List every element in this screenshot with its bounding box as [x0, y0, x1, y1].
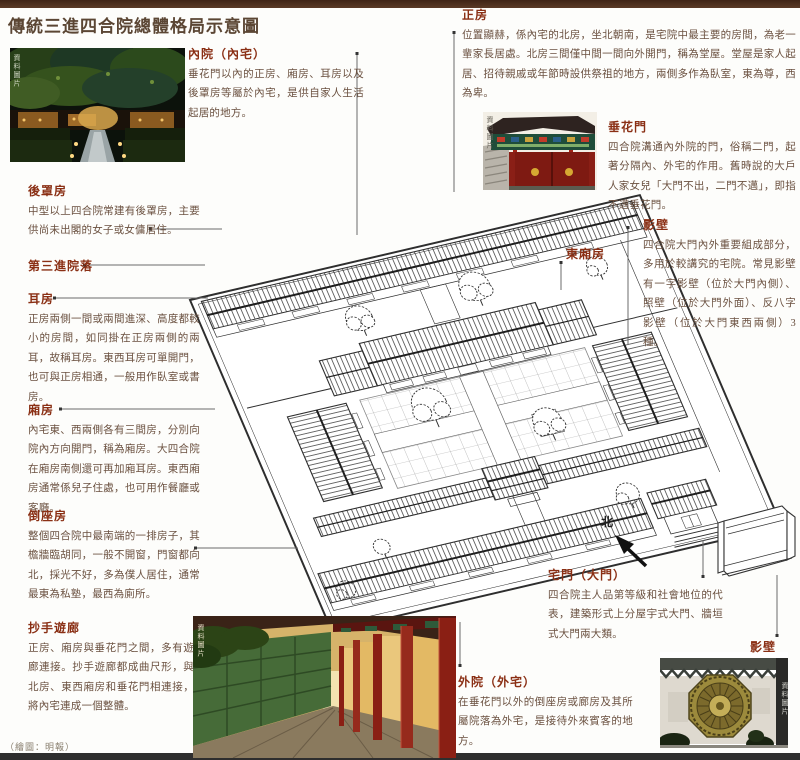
photo-yingbi-screen-wall: 資料圖片 — [660, 652, 788, 748]
tree — [453, 269, 498, 309]
annotation-erfang: 耳房 正房兩側一間或兩間進深、高度都較小的房間，如同掛在正房兩側的兩耳，故稱耳房… — [28, 290, 200, 407]
north-arrow-icon — [615, 535, 646, 566]
chuihuamen-body: 四合院溝通內外院的門，俗稱二門，起著分隔內、外宅的作用。舊時說的大戶人家女兒「大… — [608, 138, 796, 216]
daozuofang-heading: 倒座房 — [28, 507, 200, 524]
annotation-zhaimen: 宅門（大門） 四合院主人品第等級和社會地位的代表，建築形式上分屋宇式大門、牆垣式… — [548, 566, 723, 644]
erfang-body: 正房兩側一間或兩間進深、高度都較小的房間，如同掛在正房兩側的兩耳，故稱耳房。東西… — [28, 310, 200, 407]
corridor-and-chuihuamen — [310, 419, 713, 549]
night-courtyard-image — [10, 48, 185, 162]
photo-credit: 資料圖片 — [484, 116, 494, 150]
leader-disanjin — [83, 264, 205, 267]
zhengfang-body: 位置顯赫，係內宅的北房，坐北朝南，是宅院中最主要的房間，為老一輩家長居處。北房三… — [462, 26, 796, 104]
label-north: 北 — [601, 513, 613, 530]
chuihuamen-gate-image — [483, 112, 597, 190]
label-disanjin-yuanluo: 第三進院落 — [28, 257, 93, 274]
chuihuamen-heading: 垂花門 — [608, 118, 796, 135]
tree — [527, 405, 572, 444]
entrance-gate-zhaimen — [647, 479, 729, 548]
photo-night-courtyard: 資料圖片 — [10, 48, 185, 162]
corridor-image — [193, 616, 456, 758]
yingbi-heading: 影壁 — [643, 216, 796, 233]
erfang-heading: 耳房 — [28, 290, 200, 307]
leader-yingbi — [627, 226, 630, 345]
yingbi-body: 四合院大門內外重要組成部分，多用於較講究的宅院。常見影壁有一字影壁（位於大門內側… — [643, 236, 796, 353]
tree — [371, 538, 395, 561]
houzhaofang-body: 中型以上四合院常建有後罩房，主要供尚未出閣的女子或女傭居住。 — [28, 202, 200, 241]
annotation-chuihuamen: 垂花門 四合院溝通內外院的門，俗稱二門，起著分隔內、外宅的作用。舊時說的大戶人家… — [608, 118, 796, 216]
tree — [611, 481, 645, 511]
leader-zhengfang — [453, 31, 456, 192]
illustration-credit: （繪圖：明報） — [5, 740, 75, 753]
annotation-yingbi: 影壁 四合院大門內外重要組成部分，多用於較講究的宅院。常見影壁有一字影壁（位於大… — [643, 216, 796, 353]
zhaimen-body: 四合院主人品第等級和社會地位的代表，建築形式上分屋宇式大門、牆垣式大門兩大類。 — [548, 586, 723, 644]
yingbi-screen-wall-image — [660, 652, 788, 748]
photo-credit: 資料圖片 — [779, 682, 788, 716]
annotation-chaoshouyoulang: 抄手遊廊 正房、廂房與垂花門之間，多有遊廊連接。抄手遊廊都成曲尺形，與北房、東西… — [28, 619, 194, 717]
annotation-houzhaofang: 後罩房 中型以上四合院常建有後罩房，主要供尚未出閣的女子或女傭居住。 — [28, 182, 200, 241]
main-hall-zhengfang — [232, 273, 684, 424]
photo-credit: 資料圖片 — [195, 624, 205, 658]
waiyuan-heading: 外院（外宅） — [458, 673, 633, 690]
xiangfang-heading: 廂房 — [28, 401, 200, 418]
chaoshouyoulang-body: 正房、廂房與垂花門之間，多有遊廊連接。抄手遊廊都成曲尺形，與北房、東西廂房和垂花… — [28, 639, 194, 717]
leader-waiyuan — [459, 622, 462, 667]
leader-yingbi-bottom — [776, 575, 779, 637]
zhaimen-heading: 宅門（大門） — [548, 566, 723, 583]
screen-wall-sketch — [718, 506, 795, 576]
tree — [332, 579, 361, 605]
neiyuan-heading: 內院（內宅） — [188, 45, 364, 62]
waiyuan-body: 在垂花門以外的倒座房或廊房及其所屬院落為外宅，是接待外來賓客的地方。 — [458, 693, 633, 751]
page-title: 傳統三進四合院總體格局示意圖 — [8, 12, 260, 37]
inner-courtyard — [360, 348, 623, 489]
zhengfang-heading: 正房 — [462, 6, 796, 23]
annotation-neiyuan: 內院（內宅） 垂花門以內的正房、廂房、耳房以及後罩房等屬於內宅，是供自家人生活起… — [188, 45, 364, 123]
annotation-daozuofang: 倒座房 整個四合院中最南端的一排房子，其檐牆臨胡同，一般不開窗，門窗都向北，採光… — [28, 507, 200, 605]
houzhaofang-heading: 後罩房 — [28, 182, 200, 199]
annotation-zhengfang: 正房 位置顯赫，係內宅的北房，坐北朝南，是宅院中最主要的房間，為老一輩家長居處。… — [462, 6, 796, 104]
tree — [404, 384, 457, 431]
photo-chuihuamen-gate: 資料圖片 — [483, 112, 597, 190]
label-yingbi-photo: 影壁 — [750, 638, 776, 655]
leader-daozuofang — [194, 547, 298, 550]
daozuofang-body: 整個四合院中最南端的一排房子，其檐牆臨胡同，一般不開窗，門窗都向北，採光不好，多… — [28, 527, 200, 605]
leader-dongxiangfang — [560, 261, 563, 290]
neiyuan-body: 垂花門以內的正房、廂房、耳房以及後罩房等屬於內宅，是供自家人生活起居的地方。 — [188, 65, 364, 123]
photo-credit: 資料圖片 — [11, 54, 21, 88]
label-dongxiangfang: 東廂房 — [566, 245, 605, 262]
rear-building-houzhaofang — [201, 201, 647, 337]
tree — [340, 303, 380, 339]
annotation-xiangfang: 廂房 內宅東、西兩側各有三間房，分別向院內方向開門，稱為廂房。大四合院在廂房南側… — [28, 401, 200, 518]
chaoshouyoulang-heading: 抄手遊廊 — [28, 619, 194, 636]
annotation-waiyuan: 外院（外宅） 在垂花門以外的倒座房或廊房及其所屬院落為外宅，是接待外來賓客的地方… — [458, 673, 633, 751]
photo-corridor: 資料圖片 — [193, 616, 456, 758]
west-wing-xiangfang — [287, 402, 388, 502]
xiangfang-body: 內宅東、西兩側各有三間房，分別向院內方向開門，稱為廂房。大四合院在廂房南側還可再… — [28, 421, 200, 518]
